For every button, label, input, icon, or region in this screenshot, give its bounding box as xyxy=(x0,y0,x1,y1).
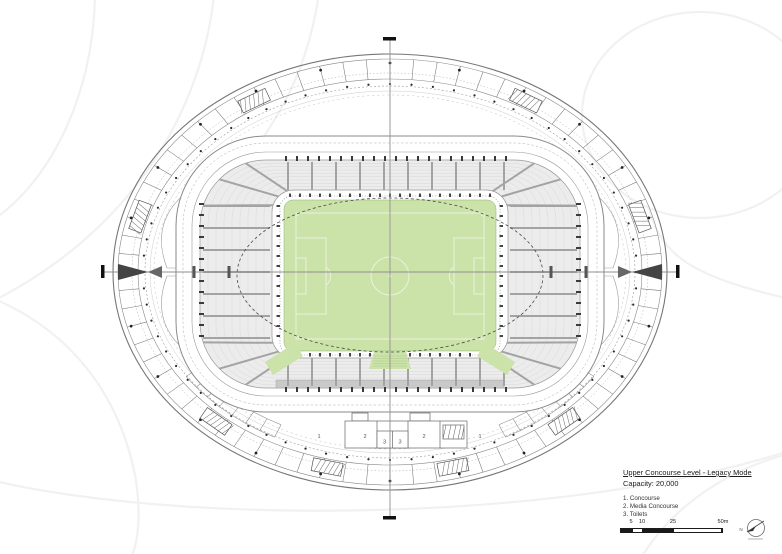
room-label-media-left: 2 xyxy=(363,434,366,440)
ring-column-dot xyxy=(453,89,455,91)
drawing-sheet: 1 2 3 3 2 1 N Upper Concourse Level - Le… xyxy=(0,0,782,554)
ring-column-dot-bold xyxy=(647,325,650,328)
scale-bar-bar xyxy=(620,528,723,533)
title-block: Upper Concourse Level - Legacy Mode Capa… xyxy=(623,468,782,518)
ring-tick xyxy=(119,289,139,291)
ring-column-dot xyxy=(613,191,615,193)
ring-tick xyxy=(134,338,153,345)
column-back xyxy=(296,156,298,161)
column-back xyxy=(395,387,397,392)
column-back xyxy=(428,387,430,392)
column-front xyxy=(369,353,371,357)
column-front xyxy=(277,235,281,237)
column-back xyxy=(576,280,581,282)
scale-tick-10: 10 xyxy=(639,519,645,525)
ring-tick xyxy=(476,453,483,472)
column-front xyxy=(500,305,504,307)
ring-column-dot xyxy=(473,448,475,450)
ring-column-dot xyxy=(325,452,327,454)
ring-tick xyxy=(143,182,161,190)
ring-column-dot xyxy=(304,448,306,450)
room-label-media-right: 2 xyxy=(422,434,425,440)
column-front xyxy=(277,305,281,307)
ring-column-dot-bold xyxy=(621,375,624,378)
ring-tick xyxy=(366,60,368,80)
ring-column-dot xyxy=(165,350,167,352)
column-back xyxy=(576,313,581,315)
column-front xyxy=(459,194,461,198)
column-back xyxy=(329,387,331,392)
ring-tick xyxy=(343,462,346,482)
column-back xyxy=(199,280,204,282)
concourse-tab xyxy=(352,413,368,421)
column-front xyxy=(469,194,471,198)
column-front xyxy=(409,194,411,198)
ring-tick xyxy=(215,109,228,124)
ring-column-dot-bold xyxy=(523,452,526,455)
column-front xyxy=(277,245,281,247)
ring-column-dot xyxy=(627,320,629,322)
north-arrow: N xyxy=(739,520,764,537)
legend-item-toilets: 3. Toilets xyxy=(623,511,782,519)
legend-item-concourse: 1. Concourse xyxy=(623,495,782,503)
column-back xyxy=(199,302,204,304)
ring-column-dot-bold xyxy=(157,375,160,378)
scale-bar: 5 10 25 50m xyxy=(620,519,740,539)
ring-tick xyxy=(297,453,304,472)
scale-segment xyxy=(632,529,643,532)
column-back xyxy=(483,156,485,161)
column-back xyxy=(199,203,204,205)
ring-column-dot xyxy=(285,101,287,103)
axis-end-marker-bottom xyxy=(383,516,396,520)
scale-segment xyxy=(643,529,673,532)
ring-column-dot-bold xyxy=(621,166,624,169)
capacity-note: Capacity: 20,000 xyxy=(623,479,782,488)
ring-column-dot xyxy=(175,365,177,367)
ring-column-dot-bold xyxy=(255,452,258,455)
ring-tick xyxy=(412,60,414,80)
ring-tick xyxy=(275,79,283,97)
ring-column-dot xyxy=(146,304,148,306)
column-front xyxy=(277,255,281,257)
contour-circle xyxy=(582,12,782,218)
ring-column-dot xyxy=(150,222,152,224)
ring-column-dot xyxy=(432,456,434,458)
column-back xyxy=(576,247,581,249)
ring-column-dot xyxy=(367,458,369,460)
column-front xyxy=(329,194,331,198)
ring-column-dot-bold xyxy=(130,325,133,328)
column-back xyxy=(199,236,204,238)
ring-stair-core xyxy=(437,457,471,476)
column-front xyxy=(277,285,281,287)
room-divider xyxy=(245,412,253,423)
room-label-toilet-right: 3 xyxy=(398,440,401,446)
column-front xyxy=(309,194,311,198)
ring-column-dot xyxy=(143,287,145,289)
column-back xyxy=(340,387,342,392)
column-back xyxy=(199,258,204,260)
axis-end-marker-right xyxy=(676,265,680,278)
scale-segment xyxy=(673,529,722,532)
ring-column-dot xyxy=(621,335,623,337)
column-back xyxy=(461,156,463,161)
column-back xyxy=(362,156,364,161)
ring-column-dot xyxy=(367,84,369,86)
ring-column-dot xyxy=(214,138,216,140)
ring-column-dot xyxy=(548,127,550,129)
ring-column-dot xyxy=(432,86,434,88)
ring-tick xyxy=(167,150,183,161)
column-back xyxy=(576,258,581,260)
ring-tick xyxy=(119,253,139,255)
ring-column-dot xyxy=(143,255,145,257)
column-back xyxy=(285,387,287,392)
column-front xyxy=(369,194,371,198)
column-back xyxy=(296,387,298,392)
ring-column-dot xyxy=(146,238,148,240)
ring-column-dot xyxy=(627,222,629,224)
ring-column-dot xyxy=(635,287,637,289)
ring-tick xyxy=(122,306,142,309)
contour-line xyxy=(648,205,782,300)
axis-end-marker-top xyxy=(383,37,396,41)
column-back xyxy=(318,156,320,161)
ring-column-dot xyxy=(512,108,514,110)
room-divider xyxy=(526,412,534,423)
column-back xyxy=(576,236,581,238)
column-front xyxy=(277,295,281,297)
room-label-concourse-right: 1 xyxy=(478,434,481,440)
column-back xyxy=(199,291,204,293)
ring-tick xyxy=(343,62,346,82)
column-front xyxy=(439,353,441,357)
column-front xyxy=(277,275,281,277)
column-back xyxy=(199,313,204,315)
ring-column-dot xyxy=(613,350,615,352)
column-back xyxy=(428,156,430,161)
ring-column-dot xyxy=(473,94,475,96)
column-back xyxy=(318,387,320,392)
column-back xyxy=(362,387,364,392)
ring-tick xyxy=(234,430,245,446)
column-back xyxy=(472,387,474,392)
ring-tick xyxy=(583,396,598,409)
column-front xyxy=(449,194,451,198)
axis-tick xyxy=(585,266,588,278)
ring-tick xyxy=(552,109,565,124)
truss-node-left xyxy=(118,264,148,280)
ring-column-dot xyxy=(200,150,202,152)
column-front xyxy=(479,194,481,198)
ring-column-dot-bold xyxy=(157,166,160,169)
ring-column-dot xyxy=(285,441,287,443)
legend-item-media-concourse: 2. Media Concourse xyxy=(623,503,782,511)
column-back xyxy=(199,324,204,326)
axis-tick xyxy=(550,266,553,278)
column-front xyxy=(439,194,441,198)
ring-column-dot xyxy=(453,452,455,454)
column-back xyxy=(417,387,419,392)
column-back xyxy=(576,324,581,326)
column-front xyxy=(399,194,401,198)
column-back xyxy=(576,302,581,304)
room-label-toilet-left: 3 xyxy=(383,440,386,446)
scale-tick-50m: 50m xyxy=(718,519,729,525)
ring-column-dot xyxy=(325,89,327,91)
ring-tick xyxy=(596,150,612,161)
axis-tick xyxy=(228,266,231,278)
column-back xyxy=(576,225,581,227)
column-back xyxy=(450,156,452,161)
column-back xyxy=(373,387,375,392)
column-back xyxy=(576,269,581,271)
ring-tick xyxy=(182,396,197,409)
ring-tick xyxy=(638,306,658,309)
scale-tick-5: 5 xyxy=(629,519,632,525)
column-front xyxy=(299,194,301,198)
column-back xyxy=(351,156,353,161)
column-front xyxy=(429,194,431,198)
column-back xyxy=(494,156,496,161)
ring-column-dot xyxy=(591,163,593,165)
column-back xyxy=(406,387,408,392)
column-front xyxy=(339,194,341,198)
ring-tick xyxy=(476,72,483,91)
ring-column-dot xyxy=(346,86,348,88)
column-front xyxy=(359,194,361,198)
ring-column-dot xyxy=(603,365,605,367)
ring-tick xyxy=(182,135,197,148)
ring-tick xyxy=(496,447,504,465)
column-back xyxy=(505,156,507,161)
ring-tick xyxy=(618,182,636,190)
column-back xyxy=(505,387,507,392)
axis-tick xyxy=(193,266,196,278)
ring-column-dot xyxy=(157,207,159,209)
column-back xyxy=(351,387,353,392)
column-back xyxy=(439,156,441,161)
column-back xyxy=(340,156,342,161)
contour-line xyxy=(0,0,95,225)
ring-column-dot xyxy=(621,207,623,209)
column-back xyxy=(395,156,397,161)
ring-column-dot xyxy=(603,177,605,179)
ring-column-dot xyxy=(157,335,159,337)
axis-end-marker-left xyxy=(101,265,105,278)
ring-tick xyxy=(641,253,661,255)
ring-column-dot xyxy=(635,255,637,257)
column-front xyxy=(277,325,281,327)
scale-segment xyxy=(621,529,632,532)
column-back xyxy=(483,387,485,392)
column-back xyxy=(461,387,463,392)
column-front xyxy=(379,194,381,198)
column-front xyxy=(277,205,281,207)
column-back xyxy=(576,335,581,337)
column-back xyxy=(384,156,386,161)
ring-tick xyxy=(496,79,504,97)
drawing-title: Upper Concourse Level - Legacy Mode xyxy=(623,468,782,477)
ring-column-dot xyxy=(346,456,348,458)
ring-tick xyxy=(122,235,142,238)
north-caption-smudge xyxy=(748,538,763,540)
ring-column-dot xyxy=(247,117,249,119)
column-back xyxy=(576,214,581,216)
ring-column-dot xyxy=(175,177,177,179)
ring-column-dot xyxy=(578,150,580,152)
column-back xyxy=(439,387,441,392)
ring-tick xyxy=(366,464,368,484)
column-back xyxy=(472,156,474,161)
ring-tick xyxy=(167,383,183,394)
column-front xyxy=(277,225,281,227)
ring-column-dot xyxy=(531,117,533,119)
column-front xyxy=(277,265,281,267)
column-back xyxy=(199,225,204,227)
ring-column-dot xyxy=(493,101,495,103)
ring-tick xyxy=(618,354,636,362)
concourse-tab xyxy=(410,413,430,421)
media-concourse-block xyxy=(345,413,467,448)
ring-column-dot xyxy=(187,163,189,165)
column-back xyxy=(384,387,386,392)
column-back xyxy=(329,156,331,161)
column-back xyxy=(576,291,581,293)
ring-stair-core xyxy=(311,458,345,477)
column-front xyxy=(500,235,504,237)
column-front xyxy=(277,335,281,337)
column-back xyxy=(307,387,309,392)
column-back xyxy=(450,387,452,392)
scale-tick-25: 25 xyxy=(670,519,676,525)
column-back xyxy=(417,156,419,161)
ring-column-dot xyxy=(304,94,306,96)
column-back xyxy=(199,247,204,249)
ring-column-dot xyxy=(410,84,412,86)
ring-tick xyxy=(535,430,546,446)
ring-column-dot xyxy=(410,458,412,460)
ring-tick xyxy=(596,383,612,394)
truss-node-right xyxy=(632,264,662,280)
column-front xyxy=(319,194,321,198)
ring-stair-core xyxy=(200,407,234,436)
ring-column-dot-bold xyxy=(319,69,322,72)
column-back xyxy=(199,214,204,216)
ring-tick xyxy=(412,464,414,484)
column-back xyxy=(576,203,581,205)
column-back xyxy=(199,335,204,337)
ring-column-dot xyxy=(493,441,495,443)
column-back xyxy=(373,156,375,161)
column-front xyxy=(277,315,281,317)
ring-column-dot xyxy=(265,108,267,110)
ring-column-dot xyxy=(230,127,232,129)
contour-line xyxy=(0,295,139,554)
ring-tick xyxy=(434,62,437,82)
ring-column-dot xyxy=(632,304,634,306)
ring-tick xyxy=(627,338,646,345)
ring-column-dot-bold xyxy=(458,69,461,72)
ring-column-dot xyxy=(564,138,566,140)
ring-column-dot-bold xyxy=(199,123,202,126)
stair-hatch xyxy=(443,425,464,439)
column-back xyxy=(199,269,204,271)
column-back xyxy=(406,156,408,161)
ring-tick xyxy=(275,447,283,465)
ring-tick xyxy=(638,235,658,238)
ring-column-dot xyxy=(150,320,152,322)
ring-tick xyxy=(297,72,304,91)
column-back xyxy=(494,387,496,392)
column-front xyxy=(277,215,281,217)
ring-column-dot xyxy=(632,238,634,240)
column-front xyxy=(349,194,351,198)
ring-tick xyxy=(641,289,661,291)
column-back xyxy=(285,156,287,161)
room-label-concourse-left: 1 xyxy=(317,434,320,440)
ring-tick xyxy=(434,462,437,482)
column-back xyxy=(307,156,309,161)
ring-column-dot-bold xyxy=(578,123,581,126)
column-front xyxy=(419,194,421,198)
ring-column-dot xyxy=(165,191,167,193)
